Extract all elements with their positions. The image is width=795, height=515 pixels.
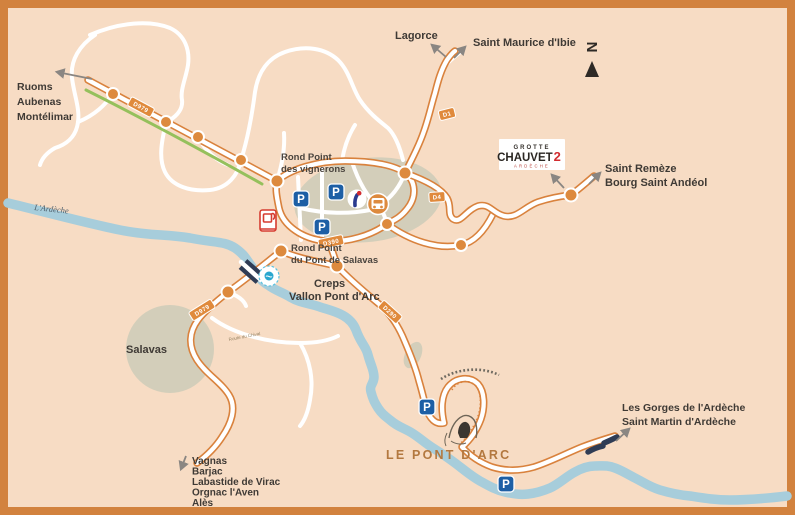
road-badge-label: D4 [433,195,442,202]
roundabout [455,239,467,251]
tourist-map: D979 D1 D4 D390 D979 D290 [0,0,795,515]
grotte-chauvet-logo: GROTTE CHAUVET2 ARDÈCHE [497,139,565,170]
parking-letter: P [502,479,510,491]
parking-icon: P [314,219,330,235]
label-saint-remeze: Saint Remèze [605,163,677,175]
parking-letter: P [318,222,326,234]
label-ales: Alès [192,498,214,509]
label-labastide: Labastide de Virac [192,477,281,488]
parking-icon: P [328,184,344,200]
roundabout [222,286,235,299]
parking-icon: P [419,399,435,415]
label-montelimar: Montélimar [17,111,73,123]
map-background [8,8,787,507]
roundabout [192,131,204,143]
logo-chauvet: CHAUVET [497,152,553,164]
logo-num: 2 [554,149,561,164]
label-pont-darc: LE PONT D'ARC [386,448,511,462]
fuel-station-icon [260,210,276,231]
label-creps: Creps [314,278,345,290]
label-orgnac: Orgnac l'Aven [192,488,259,499]
label-rond-point-salavas-1: Rond Point [291,243,342,254]
label-ruoms: Ruoms [17,81,53,93]
label-vallon: Vallon Pont d'Arc [289,291,380,303]
label-saint-maurice: Saint Maurice d'Ibie [473,37,576,49]
water-activities-icon [259,266,279,286]
roundabout-pont-de-salavas [275,245,288,258]
parking-letter: P [423,402,431,414]
label-vagnas: Vagnas [192,456,227,467]
parking-letter: P [332,187,340,199]
roundabout [107,88,119,100]
roundabout-vignerons [271,175,284,188]
logo-ardeche: ARDÈCHE [514,164,550,169]
roundabout [160,116,172,128]
tourist-office-icon [348,190,367,209]
roundabout [565,189,578,202]
label-rond-point-vignerons-1: Rond Point [281,152,332,163]
label-rond-point-salavas-2: du Pont de Salavas [291,255,378,266]
label-saint-martin: Saint Martin d'Ardèche [622,416,736,428]
roundabout [235,154,247,166]
north-letter: N [583,42,600,53]
label-rond-point-vignerons-2: des vignerons [281,164,345,175]
bus-icon [368,194,389,215]
label-gorges: Les Gorges de l'Ardèche [622,402,745,414]
label-aubenas: Aubenas [17,96,62,108]
label-bourg: Bourg Saint Andéol [605,177,707,189]
parking-letter: P [297,194,305,206]
roundabout [399,167,412,180]
road-badge-d4: D4 [429,191,446,202]
svg-text:CHAUVET2: CHAUVET2 [497,149,561,164]
parking-icon: P [293,191,309,207]
roundabout [381,218,393,230]
parking-icon: P [498,476,514,492]
map-canvas: D979 D1 D4 D390 D979 D290 [0,0,795,515]
label-salavas: Salavas [126,344,167,356]
label-barjac: Barjac [192,467,223,478]
label-lagorce: Lagorce [395,30,438,42]
logo-grotte: GROTTE [514,145,551,151]
